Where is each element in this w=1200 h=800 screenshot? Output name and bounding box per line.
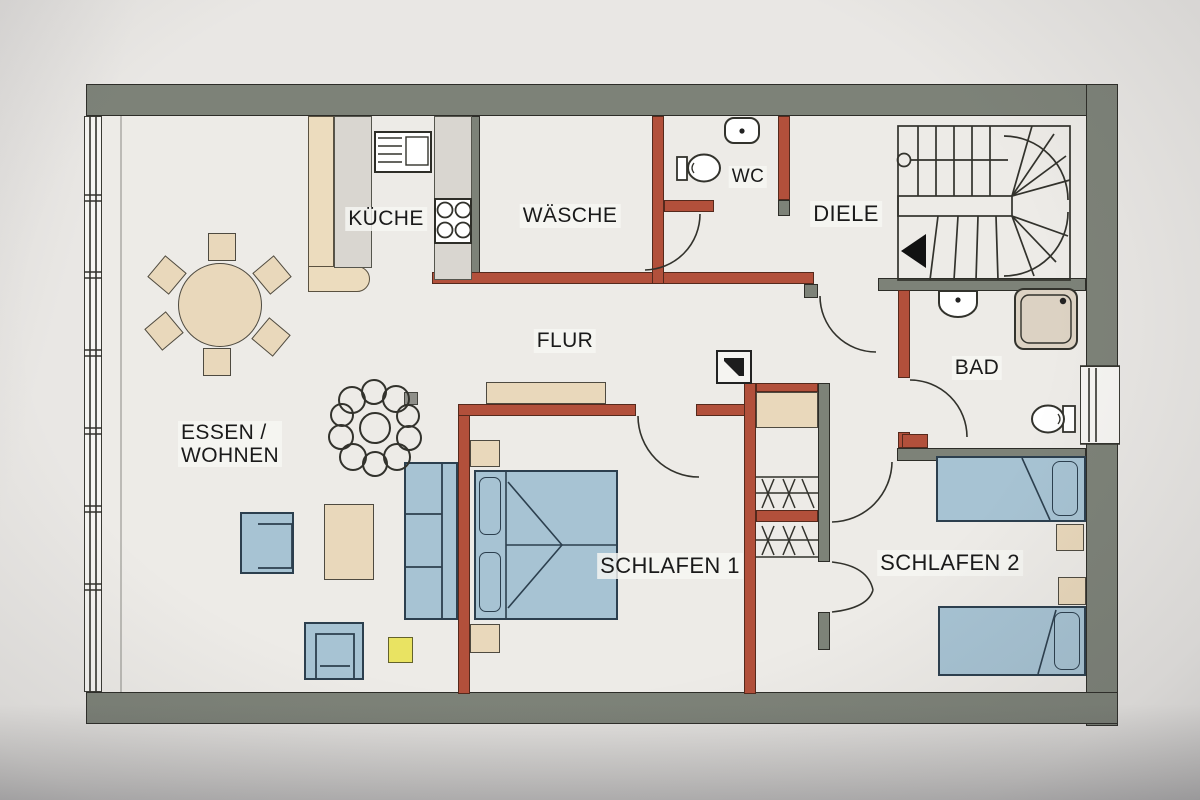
wall-wc-bottom xyxy=(664,200,714,212)
wall-bedroom2-red-stub xyxy=(902,434,928,448)
nightstand xyxy=(470,440,500,467)
sofa xyxy=(404,462,458,620)
wall-flur-top xyxy=(432,272,814,284)
wall-wardrobe-divider xyxy=(756,510,818,522)
pillow xyxy=(479,477,501,535)
room-label-flur: FLUR xyxy=(534,329,596,353)
dining-chair xyxy=(203,348,231,376)
coffee-table xyxy=(324,504,374,580)
armchair xyxy=(304,622,364,680)
wall-closet-top-edge xyxy=(756,383,818,392)
wall-exterior-top xyxy=(86,84,1118,116)
stove-icon xyxy=(434,198,472,244)
dining-chair xyxy=(208,233,236,261)
window-left-band xyxy=(84,116,102,692)
room-label-waesche: WÄSCHE xyxy=(520,204,621,228)
partition-kitchen-arm xyxy=(308,266,370,292)
floor-plan-photo: KÜCHE WÄSCHE WC DIELE BAD FLUR SCHLAFEN … xyxy=(0,0,1200,800)
room-label-essen-line2: WOHNEN xyxy=(181,444,279,467)
pillow xyxy=(1052,461,1078,516)
wall-bath-left-upper xyxy=(898,290,910,378)
nightstand xyxy=(1056,524,1084,551)
wall-bedroom1-bedroom2 xyxy=(744,383,756,694)
sideboard-flur xyxy=(486,382,606,404)
wall-wc-right xyxy=(778,116,790,200)
room-label-essen-wohnen: ESSEN / WOHNEN xyxy=(178,421,282,467)
wall-exterior-bottom xyxy=(86,692,1118,724)
wall-wc-right-cap xyxy=(778,200,790,216)
room-label-schlafen1: SCHLAFEN 1 xyxy=(597,553,743,579)
room-label-kueche: KÜCHE xyxy=(345,207,427,231)
room-label-diele: DIELE xyxy=(810,201,882,227)
shower xyxy=(1014,288,1078,350)
plant-pot xyxy=(404,392,418,405)
wall-laundry-wc xyxy=(652,116,664,284)
window-bathroom-right xyxy=(1080,366,1120,444)
chimney-icon xyxy=(716,350,752,384)
nightstand xyxy=(470,624,500,653)
room-label-wc: WC xyxy=(729,166,767,188)
wall-bedroom1-top-left xyxy=(458,404,636,416)
nightstand xyxy=(1058,577,1086,605)
wall-flur-right-cap xyxy=(804,284,818,298)
room-label-essen-line1: ESSEN / xyxy=(181,421,279,444)
dining-table xyxy=(178,263,262,347)
closet-corridor xyxy=(756,392,818,428)
armchair xyxy=(240,512,294,574)
room-label-schlafen2: SCHLAFEN 2 xyxy=(877,550,1023,576)
pillow xyxy=(1054,612,1080,670)
kitchen-sink-icon xyxy=(374,131,432,173)
wall-corridor-lower-stub xyxy=(818,612,830,650)
pillow xyxy=(479,552,501,612)
wall-corridor-upper xyxy=(818,383,830,562)
room-label-bad: BAD xyxy=(952,356,1002,380)
kitchen-counter-left xyxy=(334,116,372,268)
partition-kitchen-vertical xyxy=(308,116,334,268)
wall-living-bedroom1 xyxy=(458,404,470,694)
stool xyxy=(388,637,413,663)
